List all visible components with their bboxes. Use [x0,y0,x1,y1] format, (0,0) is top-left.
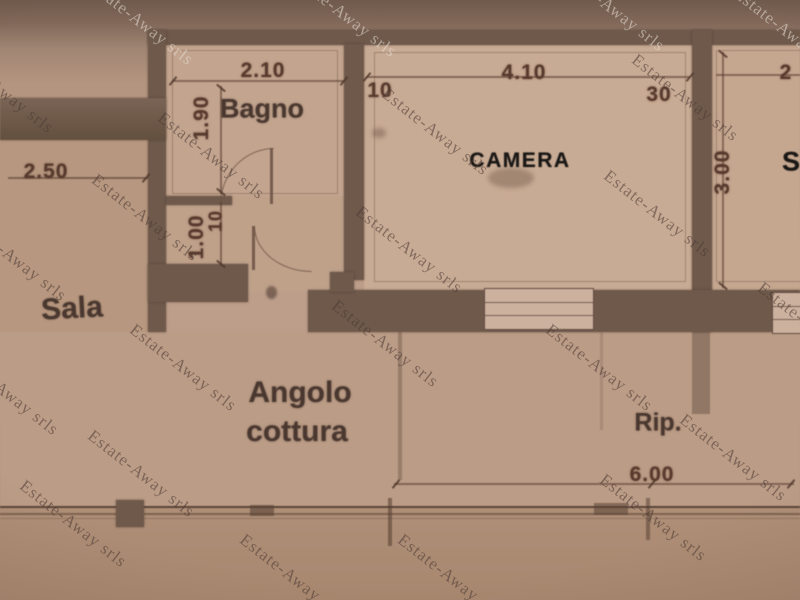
dim-right-room-partial: 2 [780,61,793,85]
balcony-wall-segment-1 [250,505,274,516]
wall-band-step [330,272,354,292]
dim-total-width: 6.00 [630,463,675,487]
window-glass-line [485,302,593,303]
photo-smudge [266,286,277,299]
dim-sala-width: 2.50 [24,160,69,184]
dim-bagno-width: 2.10 [241,59,286,83]
wall-corridor-bottom [148,264,248,302]
dim-corridor-wall: 10 [206,210,227,232]
dim-right-room-height: 3.00 [711,150,735,195]
dim-line-total-width [394,483,794,485]
wall-camera-right [692,30,712,332]
photo-smudge [488,168,534,188]
right-room-label: S [782,147,800,178]
window-symbol-camera [484,288,594,330]
wall-bagno-camera [344,44,364,280]
wall-right-room-lower [692,332,710,414]
window-glass-line [485,315,593,316]
angolo-cottura-label-line2: cottura [246,415,348,449]
angolo-cottura-label-line1: Angolo [248,376,351,410]
dim-camera-width: 4.10 [502,61,547,85]
balcony-pillar [116,500,144,527]
balcony-divider-1 [388,498,392,546]
door-leaf-corridor [252,226,255,270]
photo-smudge [372,128,386,138]
floorplan-photo: 2.10 1.90 10 4.10 30 2 3.00 2.50 1.00 10… [0,0,800,600]
door-leaf-bagno [270,148,273,204]
bagno-label: Bagno [220,94,304,125]
